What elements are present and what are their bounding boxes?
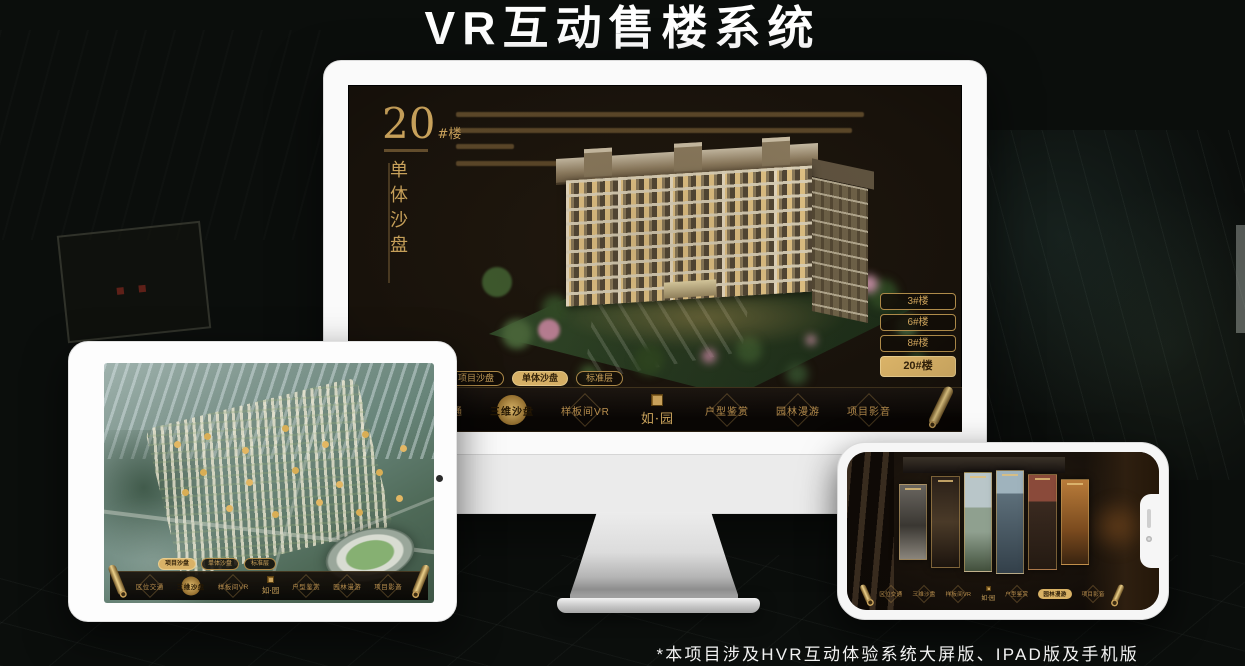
subtab-single-sandtable[interactable]: 单体沙盘 xyxy=(512,371,568,386)
monitor-stand-base xyxy=(557,598,760,613)
menu-panel[interactable] xyxy=(899,484,927,561)
nav-item-3d-sandtable[interactable]: 三维沙盘 xyxy=(177,581,205,591)
subtab-single-sandtable[interactable]: 单体沙盘 xyxy=(201,558,239,570)
menu-panel[interactable] xyxy=(1028,474,1056,570)
model-entrance-canopy xyxy=(664,279,716,298)
poster-stage: VR互动售楼系统 20#楼 单体沙盘 xyxy=(0,0,1245,666)
menu-panel[interactable] xyxy=(931,476,959,567)
nav-item-garden-tour[interactable]: 园林漫游 xyxy=(333,581,361,591)
nav-item-location[interactable]: 区位交通 xyxy=(879,590,902,598)
nav-item-3d-sandtable[interactable]: 三维沙盘 xyxy=(490,403,534,418)
floor-button[interactable]: 3#楼 xyxy=(880,293,956,310)
seal-icon xyxy=(986,586,991,591)
brand-logo: 如·园 xyxy=(641,394,674,427)
nav-item-floorplans[interactable]: 户型鉴赏 xyxy=(705,403,749,418)
background-plaque xyxy=(57,221,212,343)
subtab-standard-floor[interactable]: 标准层 xyxy=(244,558,276,570)
floor-button-active[interactable]: 20#楼 xyxy=(880,356,956,377)
building-number-badges[interactable] xyxy=(174,441,181,448)
heading-divider xyxy=(384,149,428,152)
nav-item-floorplans[interactable]: 户型鉴赏 xyxy=(292,581,320,591)
tablet-screen: 项目沙盘 单体沙盘 标准层 区位交通 三维沙盘 样板间VR 如·园 户型鉴赏 园… xyxy=(104,363,434,603)
menu-panel-row xyxy=(899,470,1089,574)
building-number: 20 xyxy=(382,99,435,148)
phone-device: 区位交通 三维沙盘 样板间VR 如·园 户型鉴赏 园林漫游 项目影音 xyxy=(837,442,1169,620)
speaker-icon xyxy=(1147,509,1151,528)
menu-panel[interactable] xyxy=(964,472,992,572)
nav-item-garden-tour[interactable]: 园林漫游 xyxy=(1038,589,1071,599)
phone-nav-bar: 区位交通 三维沙盘 样板间VR 如·园 户型鉴赏 园林漫游 项目影音 xyxy=(857,585,1127,603)
menu-panel[interactable] xyxy=(1061,479,1089,564)
page-title: VR互动售楼系统 xyxy=(0,0,1245,58)
roof-gable xyxy=(762,137,790,167)
nav-item-showroom-vr[interactable]: 样板间VR xyxy=(946,590,972,598)
subtab-project-sandtable[interactable]: 项目沙盘 xyxy=(158,558,196,570)
background-streaks xyxy=(0,30,330,240)
nav-item-location[interactable]: 区位交通 xyxy=(136,581,164,591)
phone-screen: 区位交通 三维沙盘 样板间VR 如·园 户型鉴赏 园林漫游 项目影音 xyxy=(847,452,1159,610)
monitor-stand xyxy=(570,512,738,602)
warm-light xyxy=(1087,496,1147,556)
subtab-standard-floor[interactable]: 标准层 xyxy=(576,371,623,386)
scroll-icon[interactable] xyxy=(859,584,873,605)
tablet-device: 项目沙盘 单体沙盘 标准层 区位交通 三维沙盘 样板间VR 如·园 户型鉴赏 园… xyxy=(68,341,457,622)
nav-item-garden-tour[interactable]: 园林漫游 xyxy=(776,403,820,418)
brand-logo: 如·园 xyxy=(981,586,995,602)
model-facade-side xyxy=(812,177,868,323)
scroll-icon[interactable] xyxy=(411,564,430,597)
monitor-subtab-row: 项目沙盘 单体沙盘 标准层 xyxy=(448,371,623,386)
nav-item-project-media[interactable]: 项目影音 xyxy=(1082,590,1105,598)
model-blossom-trees xyxy=(538,319,560,341)
roof-gable xyxy=(674,142,702,172)
brand-logo-text: 如·园 xyxy=(262,585,279,596)
roof-gable xyxy=(584,148,612,178)
camera-icon xyxy=(436,475,443,482)
nav-item-showroom-vr[interactable]: 样板间VR xyxy=(218,581,249,591)
floor-button[interactable]: 8#楼 xyxy=(880,335,956,352)
nav-item-floorplans[interactable]: 户型鉴赏 xyxy=(1005,590,1028,598)
brand-logo-text: 如·园 xyxy=(981,593,995,602)
scroll-icon[interactable] xyxy=(1111,584,1125,605)
footnote: *本项目涉及HVR互动体验系统大屏版、IPAD版及手机版 xyxy=(656,640,1139,665)
model-trees xyxy=(482,267,512,297)
floor-button[interactable]: 6#楼 xyxy=(880,314,956,331)
background-map-right xyxy=(980,130,1245,480)
seal-icon xyxy=(267,576,274,583)
intro-text-line xyxy=(456,112,864,117)
nav-item-project-media[interactable]: 项目影音 xyxy=(374,581,402,591)
phone-notch xyxy=(1140,494,1159,568)
heading-side-rule xyxy=(388,163,390,283)
scroll-icon[interactable] xyxy=(927,385,954,427)
seal-icon xyxy=(651,394,663,406)
nav-item-3d-sandtable[interactable]: 三维沙盘 xyxy=(912,590,935,598)
menu-panel[interactable] xyxy=(996,470,1024,575)
nav-item-showroom-vr[interactable]: 样板间VR xyxy=(561,403,610,418)
building-3d-model[interactable] xyxy=(468,143,938,405)
tablet-nav-bar: 项目沙盘 单体沙盘 标准层 区位交通 三维沙盘 样板间VR 如·园 户型鉴赏 园… xyxy=(110,571,428,600)
tablet-subtab-row: 项目沙盘 单体沙盘 标准层 xyxy=(158,558,276,570)
background-light-strip xyxy=(1236,225,1245,333)
brand-logo-text: 如·园 xyxy=(641,408,674,427)
camera-icon xyxy=(1146,536,1152,542)
intro-text-line xyxy=(456,128,852,133)
floor-button-group: 3#楼 6#楼 8#楼 20#楼 xyxy=(880,293,956,377)
building-heading: 20#楼 单体沙盘 xyxy=(382,103,461,310)
brand-logo: 如·园 xyxy=(262,576,279,596)
nav-item-project-media[interactable]: 项目影音 xyxy=(847,403,891,418)
